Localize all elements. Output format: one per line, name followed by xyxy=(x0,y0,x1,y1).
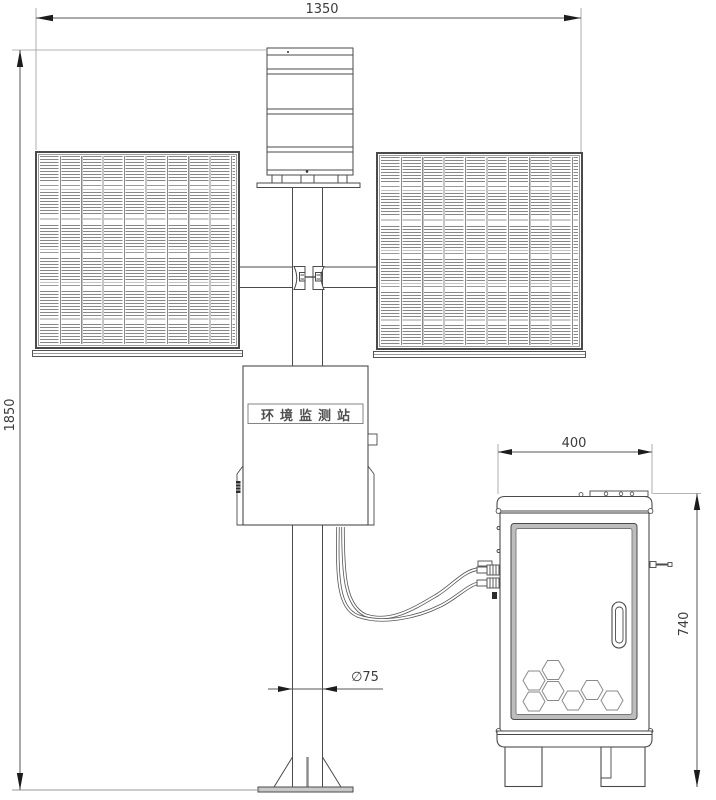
dim-label-cabinet-width: 400 xyxy=(554,437,594,451)
solar-panel-right xyxy=(376,152,583,350)
station-box-label: 环境监测站 xyxy=(248,404,363,424)
panel-mounting-arm xyxy=(240,267,377,290)
solar-panel-left xyxy=(35,151,240,349)
dimension-pole-diameter xyxy=(268,686,383,692)
clamp-bolt xyxy=(300,273,322,282)
box-hinge xyxy=(236,481,241,493)
cable-gland-connectors xyxy=(477,527,500,600)
side-rod xyxy=(650,562,672,568)
dim-label-pole-diameter: ∅75 xyxy=(344,671,386,685)
control-cabinet xyxy=(477,491,672,787)
solar-panel-left-rail xyxy=(32,350,243,357)
cables xyxy=(338,527,479,620)
sensor-flange xyxy=(257,183,360,188)
box-side-latch xyxy=(368,434,377,445)
door-handle xyxy=(612,602,626,648)
station-box xyxy=(236,366,377,525)
technical-drawing-monitoring-station: 1350 1850 400 740 ∅75 环境监测站 xyxy=(0,0,716,800)
dimension-400 xyxy=(498,444,652,494)
dim-label-cabinet-height: 740 xyxy=(678,604,692,644)
sensor-feet xyxy=(272,175,347,183)
solar-panel-right-cells xyxy=(381,157,578,345)
base-plate xyxy=(258,787,353,792)
dim-label-overall-width: 1350 xyxy=(292,3,352,17)
cabinet-skirt xyxy=(497,731,652,747)
pole-base xyxy=(258,757,353,792)
solar-panel-right-rail xyxy=(373,351,586,358)
cabinet-leg-right xyxy=(601,747,645,787)
dim-label-overall-height: 1850 xyxy=(4,395,18,435)
dimension-740 xyxy=(653,494,701,788)
solar-panel-left-cells xyxy=(40,156,235,344)
wind-sensor xyxy=(257,48,360,188)
cabinet-leg-left xyxy=(505,747,542,787)
